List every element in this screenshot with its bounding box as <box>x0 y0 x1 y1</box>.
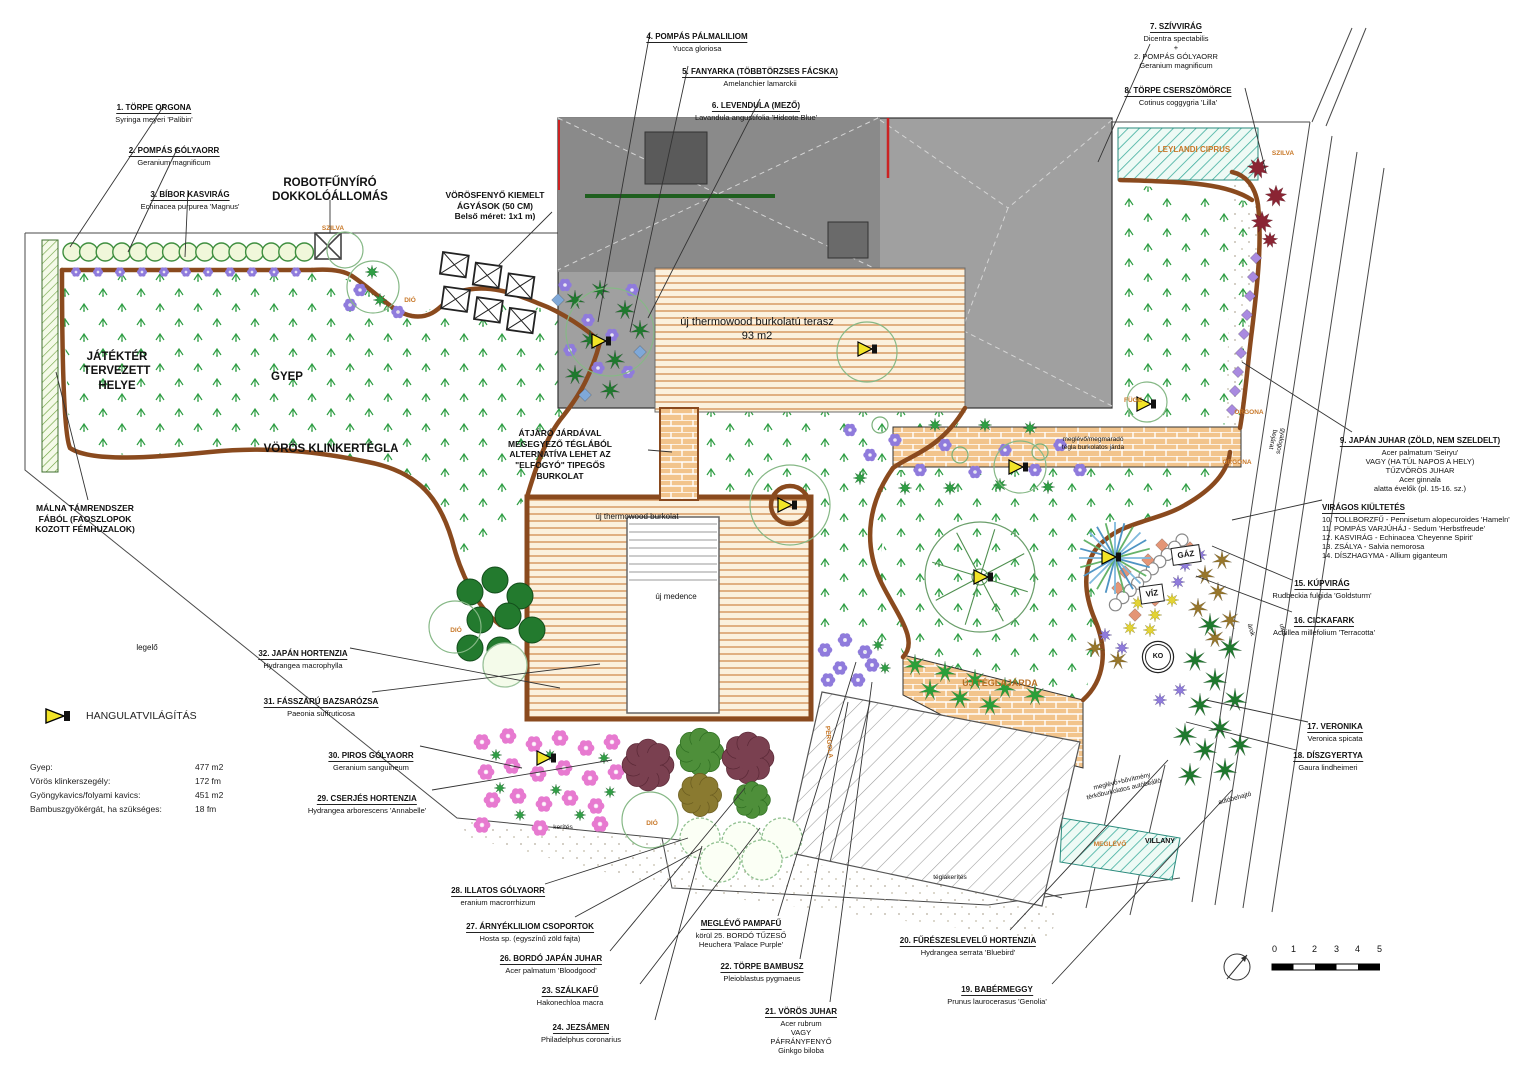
legend: HANGULATVILÁGÍTÁS Gyep:477 m2 Vörös klin… <box>30 698 280 816</box>
legend-row: Gyöngykavics/folyami kavics:451 m2 <box>30 788 280 802</box>
lighting-legend: HANGULATVILÁGÍTÁS <box>44 706 280 726</box>
legend-row-value: 451 m2 <box>195 788 223 802</box>
terrace <box>655 268 965 412</box>
scale-tick: 0 <box>1272 944 1277 954</box>
legend-row-label: Vörös klinkerszegély: <box>30 774 195 788</box>
lighting-legend-label: HANGULATVILÁGÍTÁS <box>86 710 197 722</box>
scale-tick: 4 <box>1355 944 1360 954</box>
legend-row-label: Gyöngykavics/folyami kavics: <box>30 788 195 802</box>
scale-bar-graphic <box>1272 964 1380 970</box>
plan-drawing <box>0 0 1528 1080</box>
scale-tick: 1 <box>1291 944 1296 954</box>
scale-tick: 3 <box>1334 944 1339 954</box>
legend-row-value: 172 fm <box>195 774 221 788</box>
legend-row: Bambuszgyökérgát, ha szükséges:18 fm <box>30 802 280 816</box>
raspberry-strip <box>42 240 58 472</box>
scale-bar: 0 1 2 3 4 5 <box>1272 944 1392 958</box>
pool <box>627 517 719 713</box>
mood-lighting-icon <box>44 706 72 726</box>
north-compass <box>1224 954 1250 980</box>
legend-row-label: Bambuszgyökérgát, ha szükséges: <box>30 802 195 816</box>
legend-row-label: Gyep: <box>30 760 195 774</box>
legend-row: Vörös klinkerszegély:172 fm <box>30 774 280 788</box>
scale-tick: 5 <box>1377 944 1382 954</box>
scale-tick: 2 <box>1312 944 1317 954</box>
garden-plan: 1. TÖRPE ORGONASyringa meyeri 'Palibin'2… <box>0 0 1528 1080</box>
legend-row-value: 18 fm <box>195 802 216 816</box>
legend-row-value: 477 m2 <box>195 760 223 774</box>
legend-row: Gyep:477 m2 <box>30 760 280 774</box>
pool-deck <box>527 497 811 719</box>
